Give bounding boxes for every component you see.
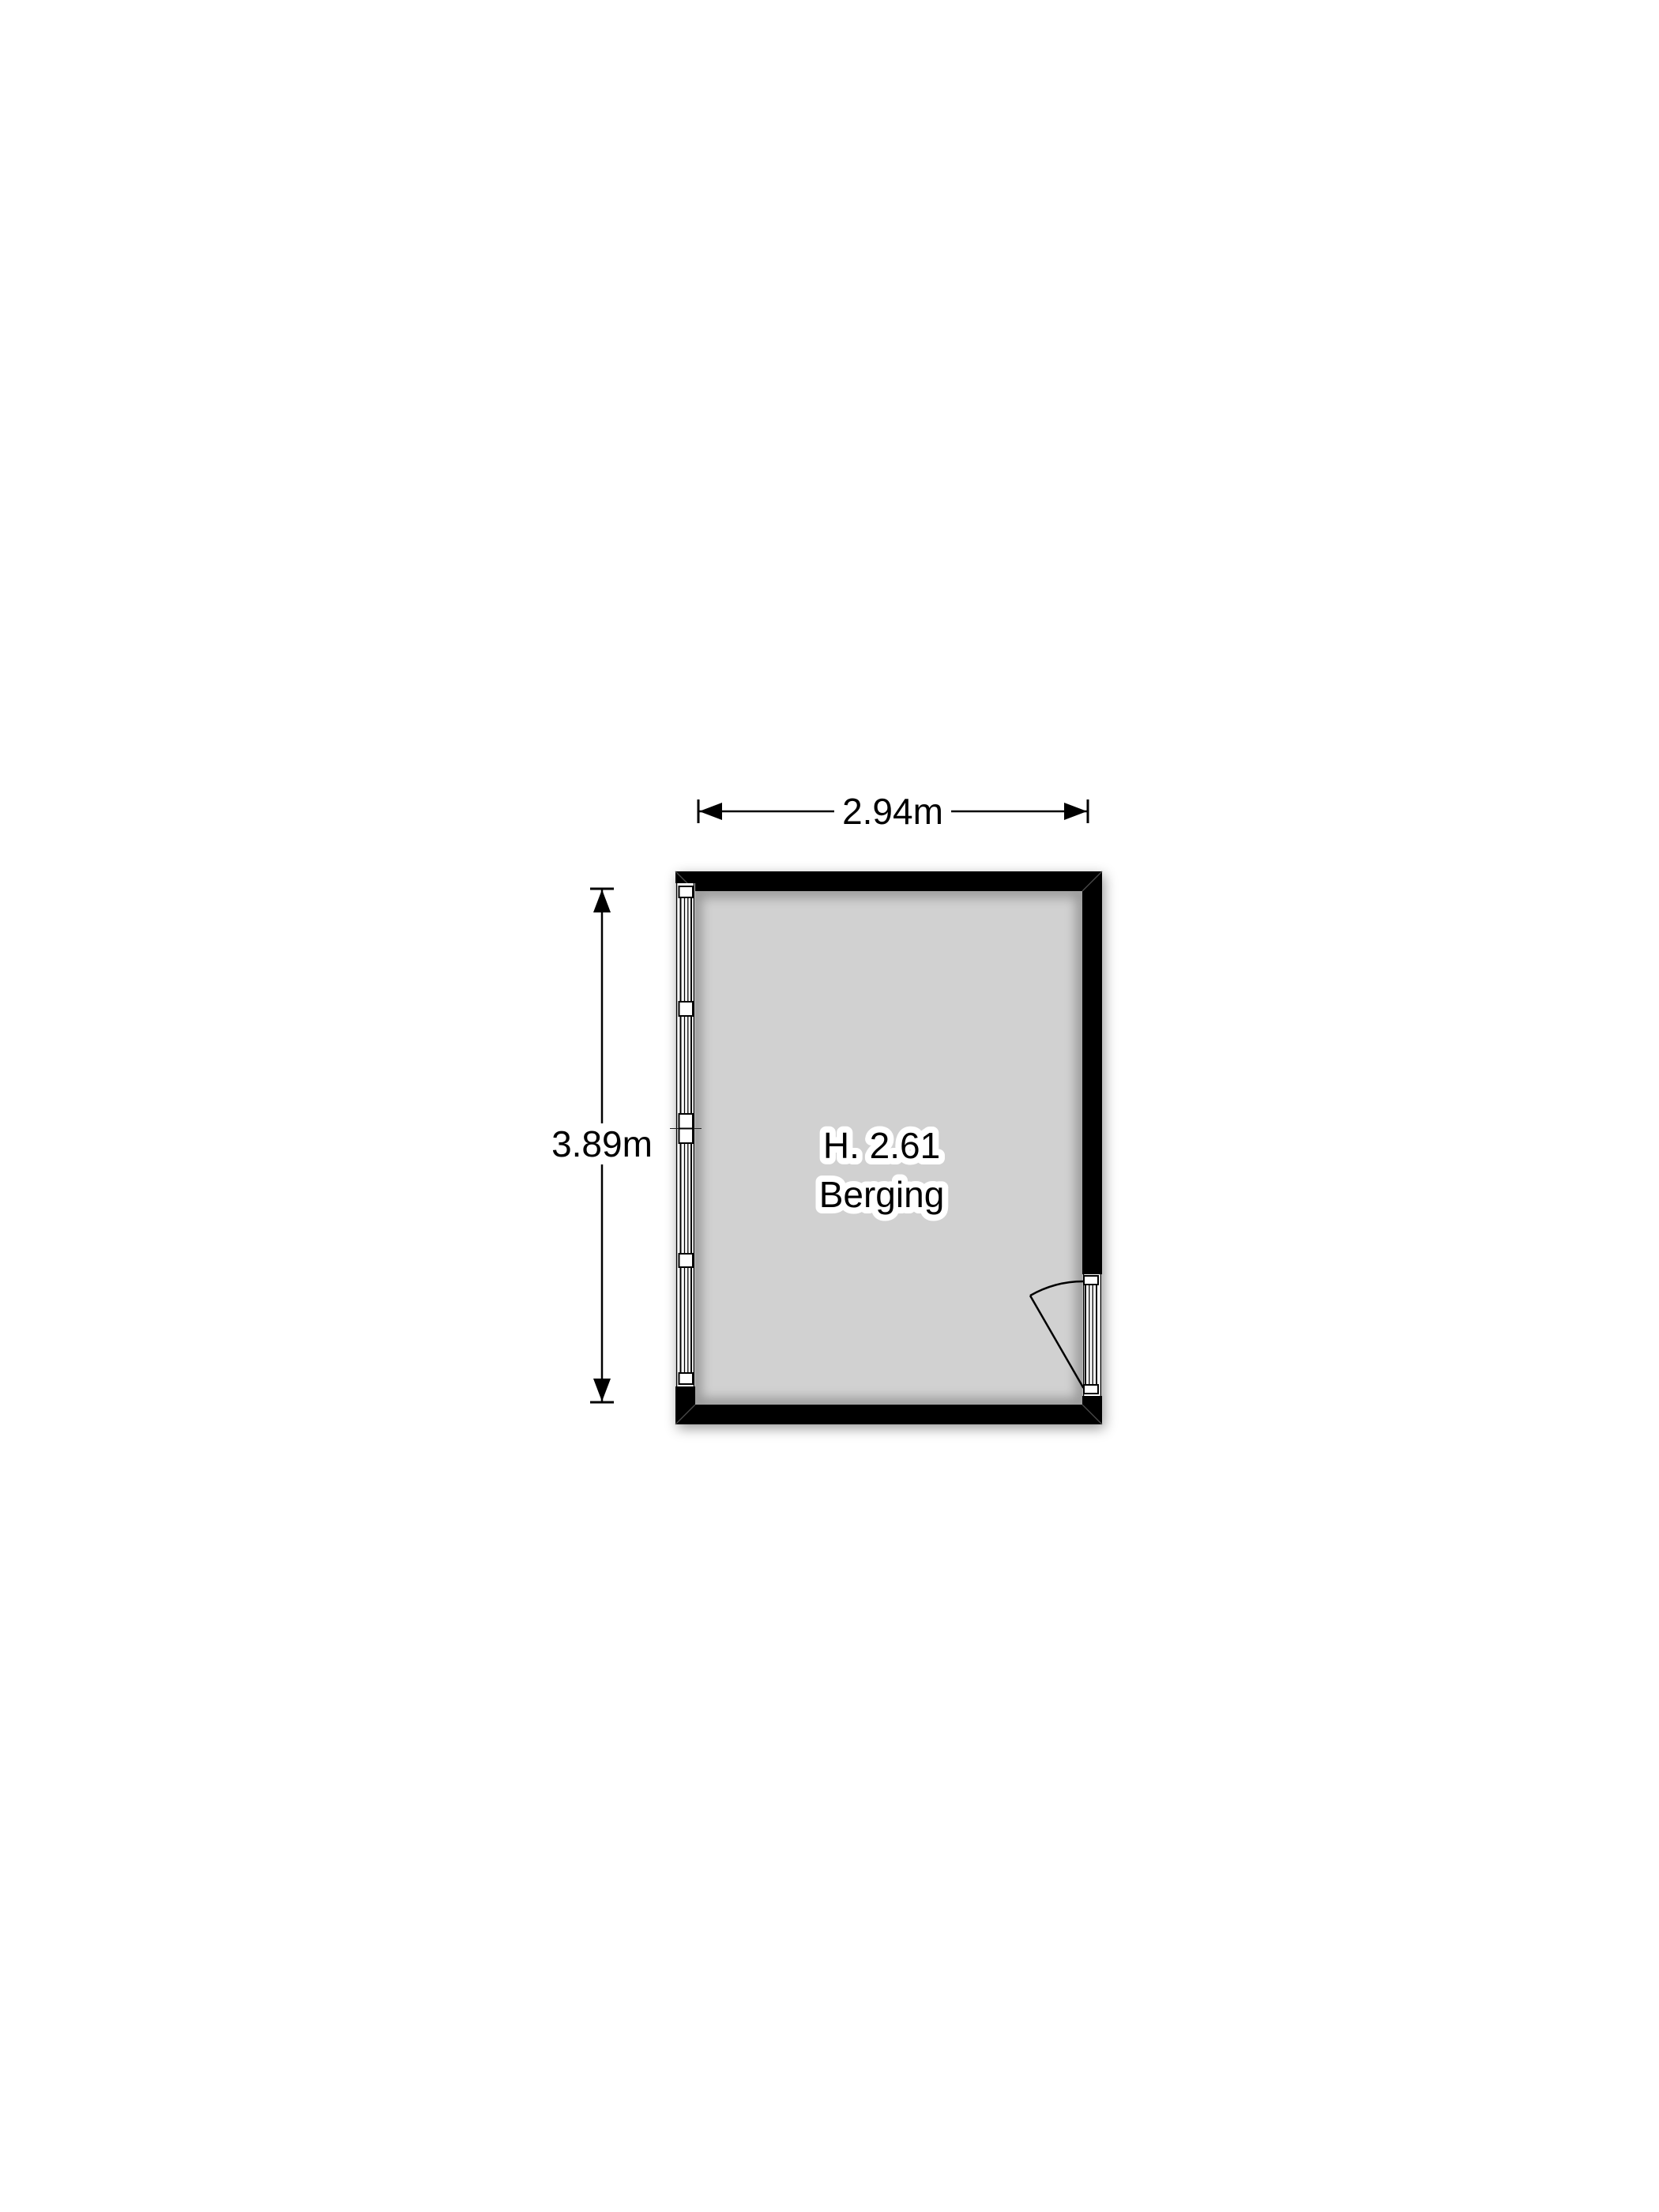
room-height-label: H. 2.61 [823, 1125, 940, 1166]
dimension-width-label: 2.94m [842, 791, 943, 832]
arrow-down-icon [593, 1379, 611, 1401]
dimension-depth-label: 3.89m [551, 1123, 653, 1164]
arrow-left-icon [699, 803, 722, 820]
room-name-label: Berging [819, 1174, 945, 1215]
door-frame [1085, 1277, 1097, 1391]
dimension-width: 2.94m [698, 791, 1088, 832]
arrow-up-icon [593, 890, 611, 912]
dimension-depth: 3.89m [540, 889, 664, 1402]
floorplan-drawing: 2.94m 3.89m H. 2.61 Berging H. 2.61 Berg… [0, 0, 1659, 2212]
floorplan-page: 2.94m 3.89m H. 2.61 Berging H. 2.61 Berg… [0, 0, 1659, 2212]
arrow-right-icon [1064, 803, 1087, 820]
